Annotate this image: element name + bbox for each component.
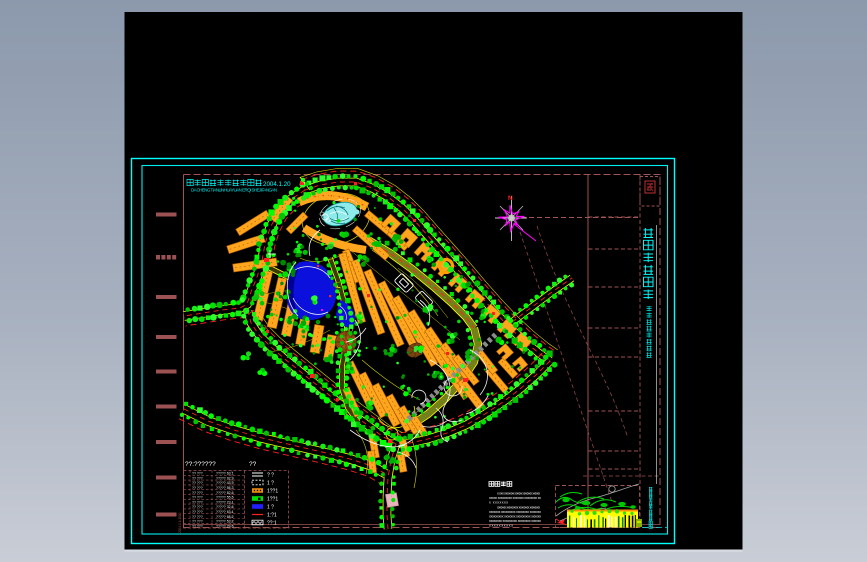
svg-text:????? 32.6: ????? 32.6 — [216, 505, 234, 509]
svg-text:?? ???: ?? ??? — [192, 505, 203, 509]
svg-text:?? ???: ?? ??? — [192, 524, 203, 528]
svg-text:?? ???: ?? ??? — [192, 481, 203, 485]
svg-text:????? 63.1: ????? 63.1 — [216, 472, 234, 476]
svg-text:2004.1 1:1000: 2004.1 1:1000 — [178, 512, 182, 533]
svg-text:??:1: ??:1 — [267, 520, 277, 526]
svg-text:??: ?? — [249, 461, 257, 468]
svg-text:????? 29.6: ????? 29.6 — [216, 524, 234, 528]
svg-text:????? 55.5: ????? 55.5 — [216, 496, 234, 500]
svg-text:?? ???: ?? ??? — [192, 486, 203, 490]
svg-text:?? ???: ?? ??? — [192, 510, 203, 514]
svg-text:?? ???: ?? ??? — [192, 472, 203, 476]
svg-text:?? ???: ?? ??? — [192, 476, 203, 480]
svg-text:1 ?: 1 ? — [267, 504, 274, 510]
svg-text:xxxxxxxx xxxxxxxxx xxxxxxxx xx: xxxxxxxx xxxxxxxxx xxxxxxxx xxxxxx — [489, 519, 541, 523]
svg-text:xxxxxxx xxxxxxxxx xxxxxxxx xxx: xxxxxxx xxxxxxxxx xxxxxxxx xxxxxxx — [489, 510, 541, 514]
svg-text:?? ???: ?? ??? — [192, 500, 203, 504]
svg-text:????? 23.1: ????? 23.1 — [216, 500, 234, 504]
svg-text:????? 63.1: ????? 63.1 — [216, 510, 234, 514]
svg-text:????? 68.2: ????? 68.2 — [216, 515, 234, 519]
svg-text:xxxxxxxxx xxxxxxx xxxxxxxxx xx: xxxxxxxxx xxxxxxx xxxxxxxxx xxxxxx — [489, 515, 541, 519]
svg-text:????? 92.9: ????? 92.9 — [216, 476, 234, 480]
svg-text:xxxxxxxxxx: xxxxxxxxxx — [489, 524, 513, 528]
svg-text:????? 43.9: ????? 43.9 — [216, 481, 234, 485]
svg-text:xxxxx xxxxxxxxx xxxxxxx xxxxxx: xxxxx xxxxxxxxx xxxxxxx xxxxxxxx xx — [489, 496, 541, 500]
svg-text:1??1: 1??1 — [267, 496, 278, 502]
svg-text:1??1: 1??1 — [267, 488, 278, 494]
svg-text:1:?1: 1:?1 — [267, 512, 277, 518]
svg-text:????? 53.2: ????? 53.2 — [216, 520, 234, 524]
svg-text:N: N — [508, 195, 513, 202]
svg-text:????? 82.6: ????? 82.6 — [216, 491, 234, 495]
svg-text:DA CHENG TIANLINHUAYUAN ERQI S: DA CHENG TIANLINHUAYUAN ERQI SHEJIFANGAN — [191, 188, 277, 193]
svg-text:????? 55.3: ????? 55.3 — [216, 486, 234, 490]
svg-text:xxxxxx xxxxxxxx xxxxxxx xxxxxx: xxxxxx xxxxxxxx xxxxxxx xxxxxxx — [497, 505, 540, 509]
svg-text:? ?: ? ? — [267, 472, 274, 478]
svg-text:?? ???: ?? ??? — [192, 491, 203, 495]
svg-text:x xxxxxxx: x xxxxxxx — [489, 501, 508, 505]
svg-text:?? ???: ?? ??? — [192, 496, 203, 500]
svg-text:x xxx xxxxxxx xxxxx xxxxxx xxx: x xxx xxxxxxx xxxxx xxxxxx xxxxx — [497, 492, 540, 496]
svg-text:?? ???: ?? ??? — [192, 515, 203, 519]
svg-text:1 ?: 1 ? — [267, 480, 274, 486]
svg-text:??:??????: ??:?????? — [185, 461, 216, 468]
svg-text:?? ???: ?? ??? — [192, 520, 203, 524]
